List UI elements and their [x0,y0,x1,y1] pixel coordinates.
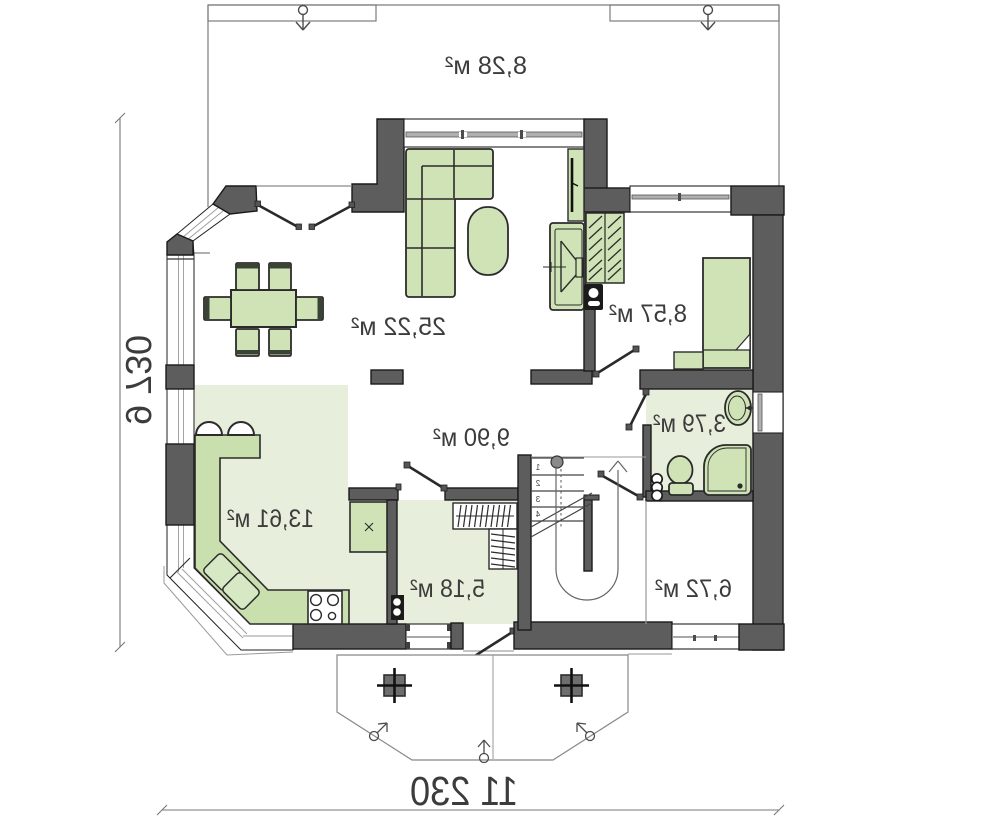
svg-text:11 230: 11 230 [410,768,518,814]
svg-text:9 730: 9 730 [118,335,159,425]
svg-text:13,61 м²: 13,61 м² [227,505,314,533]
svg-text:8,57 м²: 8,57 м² [609,300,687,328]
svg-text:25,22 м²: 25,22 м² [351,313,446,341]
svg-text:5,18 м²: 5,18 м² [410,575,485,603]
svg-text:6,72 м²: 6,72 м² [655,575,732,603]
svg-text:4: 4 [535,510,540,519]
svg-text:8,28 м²: 8,28 м² [445,52,527,80]
svg-text:3,79 м²: 3,79 м² [653,410,726,438]
svg-text:3: 3 [535,495,540,504]
svg-text:1: 1 [535,463,540,472]
svg-text:2: 2 [535,479,540,488]
svg-text:9,90 м²: 9,90 м² [433,424,510,452]
